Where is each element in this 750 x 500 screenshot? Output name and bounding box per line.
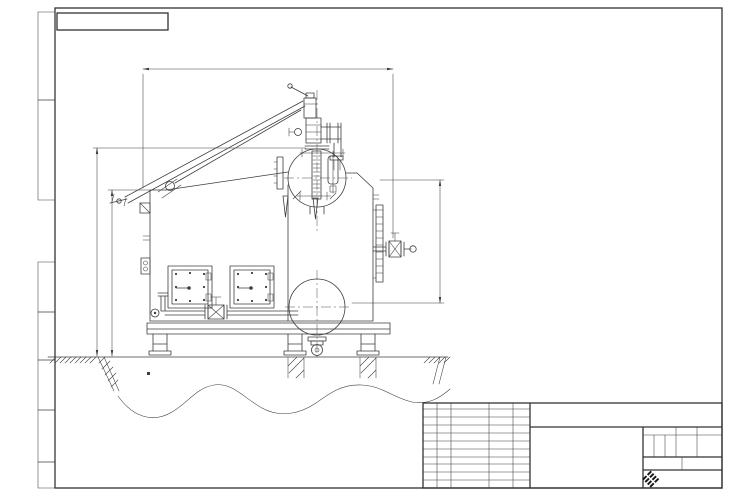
- boiler-drawing: [48, 69, 450, 418]
- title-block: [423, 403, 722, 488]
- blowdown-pipe: [158, 293, 298, 319]
- left-wall-fittings: [140, 203, 159, 317]
- safety-valve-assembly: [288, 84, 343, 170]
- side-strip: [38, 12, 55, 488]
- right-side-fittings: [373, 195, 416, 282]
- support-frame: [147, 323, 390, 355]
- drawing-frame: [38, 8, 722, 488]
- drawing-canvas: [0, 0, 750, 500]
- dimension-lines: [93, 69, 444, 356]
- water-gauge-assembly: [274, 149, 345, 219]
- break-line: [118, 385, 450, 418]
- kvzr-logo-icon: [642, 471, 659, 488]
- access-doors: [168, 266, 274, 308]
- blueprint-sheet: [0, 0, 750, 500]
- corner-designation-stamp: [57, 13, 168, 30]
- boiler-outline: [150, 149, 373, 321]
- ground-and-pit: [48, 357, 450, 418]
